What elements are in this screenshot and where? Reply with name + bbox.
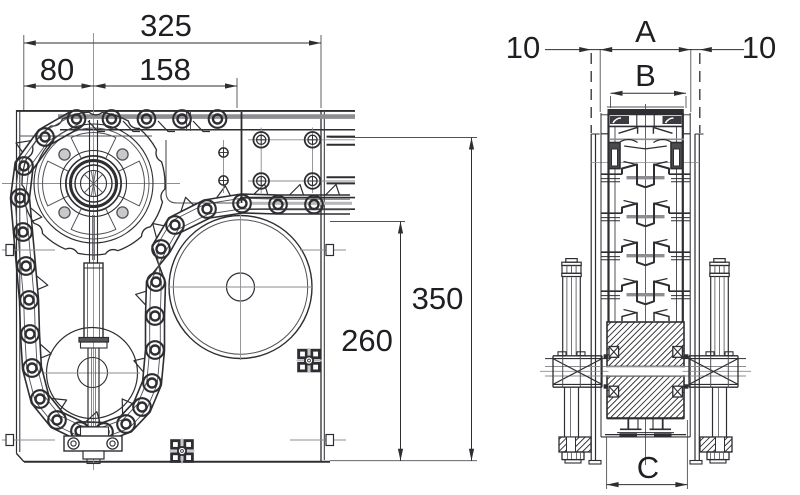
svg-text:158: 158: [139, 52, 191, 87]
svg-text:350: 350: [412, 281, 464, 316]
svg-text:A: A: [635, 14, 656, 49]
svg-text:C: C: [637, 450, 659, 485]
svg-text:325: 325: [140, 8, 192, 43]
svg-text:10: 10: [506, 30, 540, 65]
svg-text:10: 10: [742, 30, 776, 65]
svg-text:260: 260: [341, 323, 393, 358]
svg-text:80: 80: [40, 52, 74, 87]
svg-text:B: B: [635, 58, 656, 93]
